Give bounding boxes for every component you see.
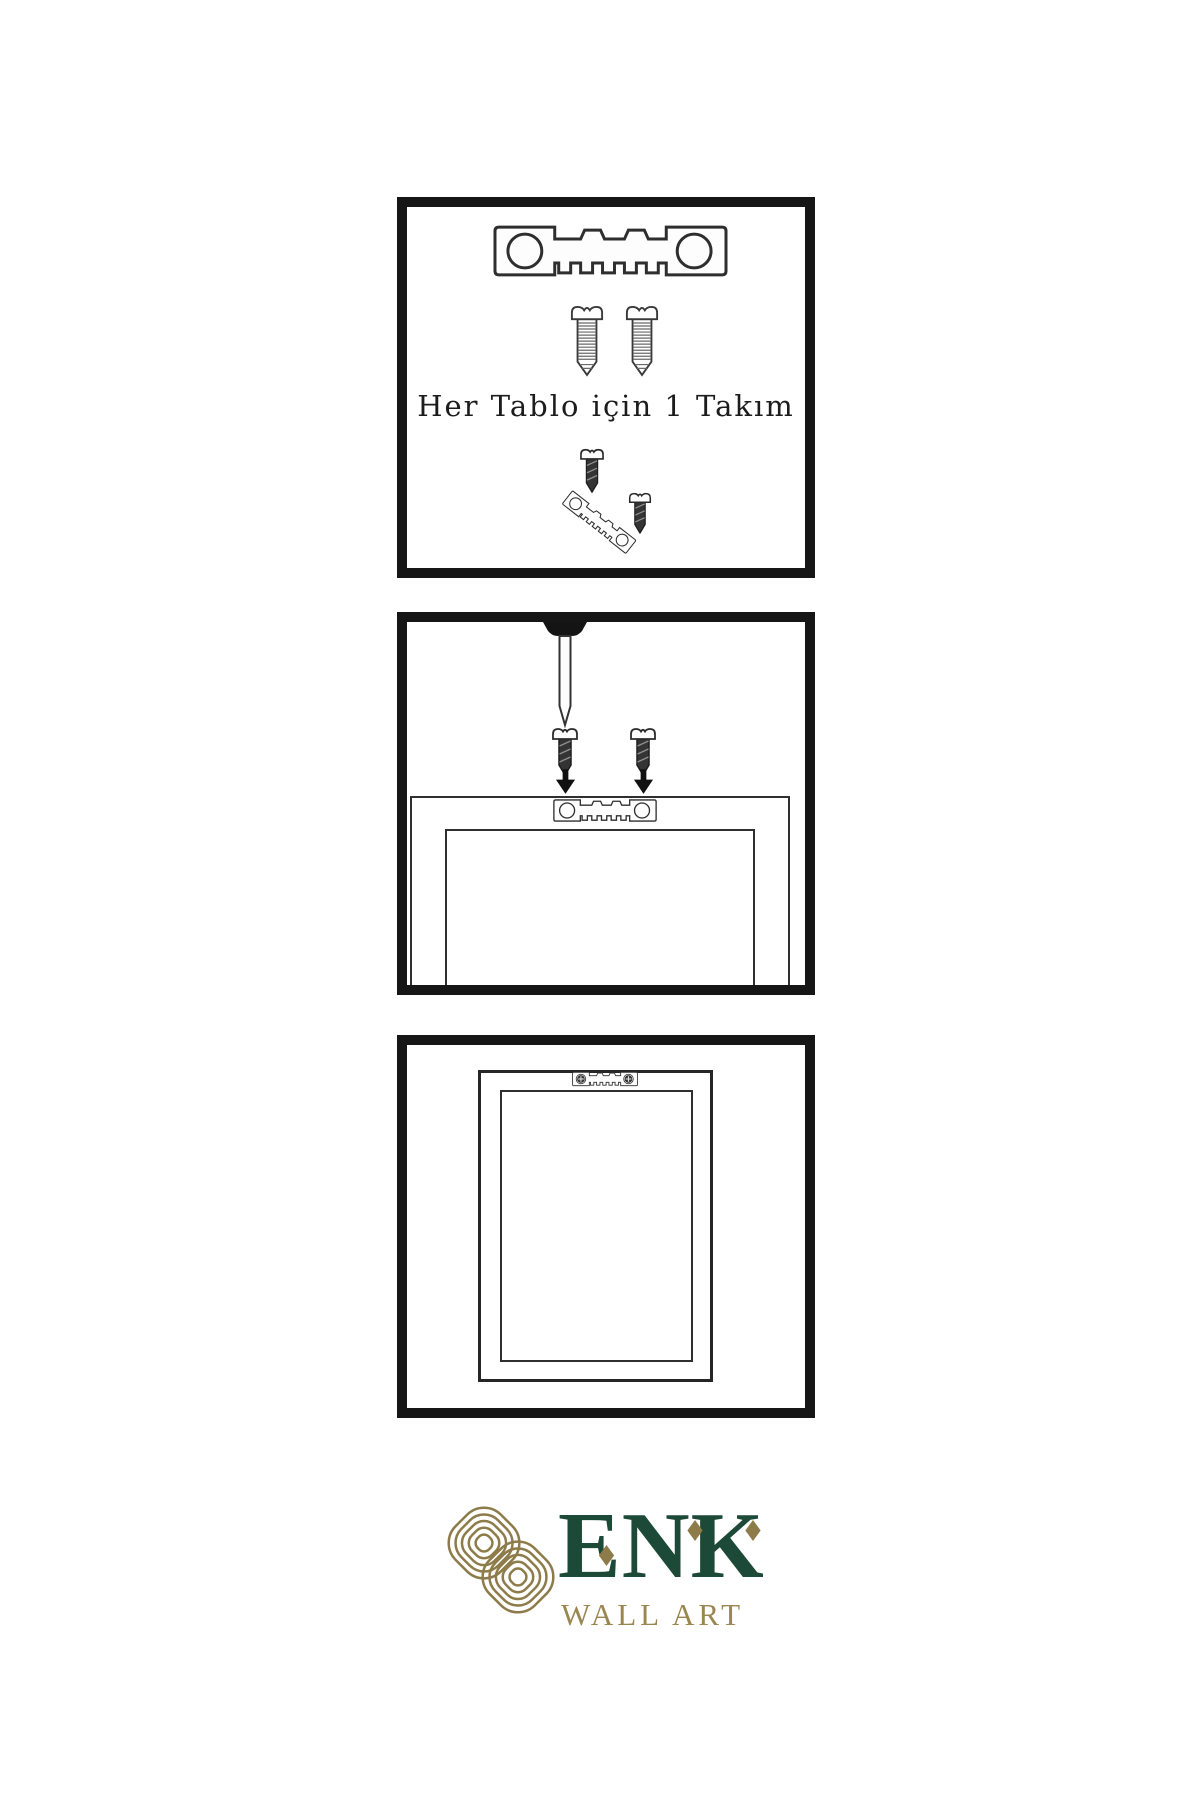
diamond-accent-icon bbox=[687, 1520, 703, 1541]
screw-icon bbox=[625, 303, 659, 377]
panel-hardware-kit: Her Tablo için 1 Takım bbox=[397, 197, 815, 578]
down-arrow-icon bbox=[633, 769, 654, 794]
sawtooth-hanger-icon bbox=[493, 223, 728, 279]
screw-icon bbox=[570, 303, 604, 377]
interlocking-knot-icon bbox=[438, 1490, 564, 1630]
wall-nail-icon bbox=[542, 622, 588, 728]
diamond-accent-icon bbox=[598, 1545, 615, 1566]
diamond-accent-icon bbox=[745, 1520, 761, 1541]
instruction-sheet: Her Tablo için 1 Takım bbox=[0, 0, 1200, 1800]
kit-caption: Her Tablo için 1 Takım bbox=[407, 389, 805, 423]
brand-tagline: WALL ART bbox=[561, 1597, 821, 1633]
small-screw-icon bbox=[628, 491, 652, 534]
picture-frame-inner-outline bbox=[445, 829, 755, 992]
tilted-sawtooth-hanger-icon bbox=[561, 489, 638, 555]
sawtooth-hanger-icon bbox=[553, 798, 657, 823]
brand-name: ENK bbox=[558, 1498, 818, 1598]
panel-hang-step bbox=[397, 1035, 815, 1418]
small-screw-icon bbox=[579, 447, 605, 493]
panel-install-step bbox=[397, 612, 815, 995]
mounted-sawtooth-hanger-icon bbox=[572, 1071, 638, 1087]
picture-frame-inner-outline bbox=[500, 1090, 693, 1362]
down-arrow-icon bbox=[555, 769, 576, 794]
